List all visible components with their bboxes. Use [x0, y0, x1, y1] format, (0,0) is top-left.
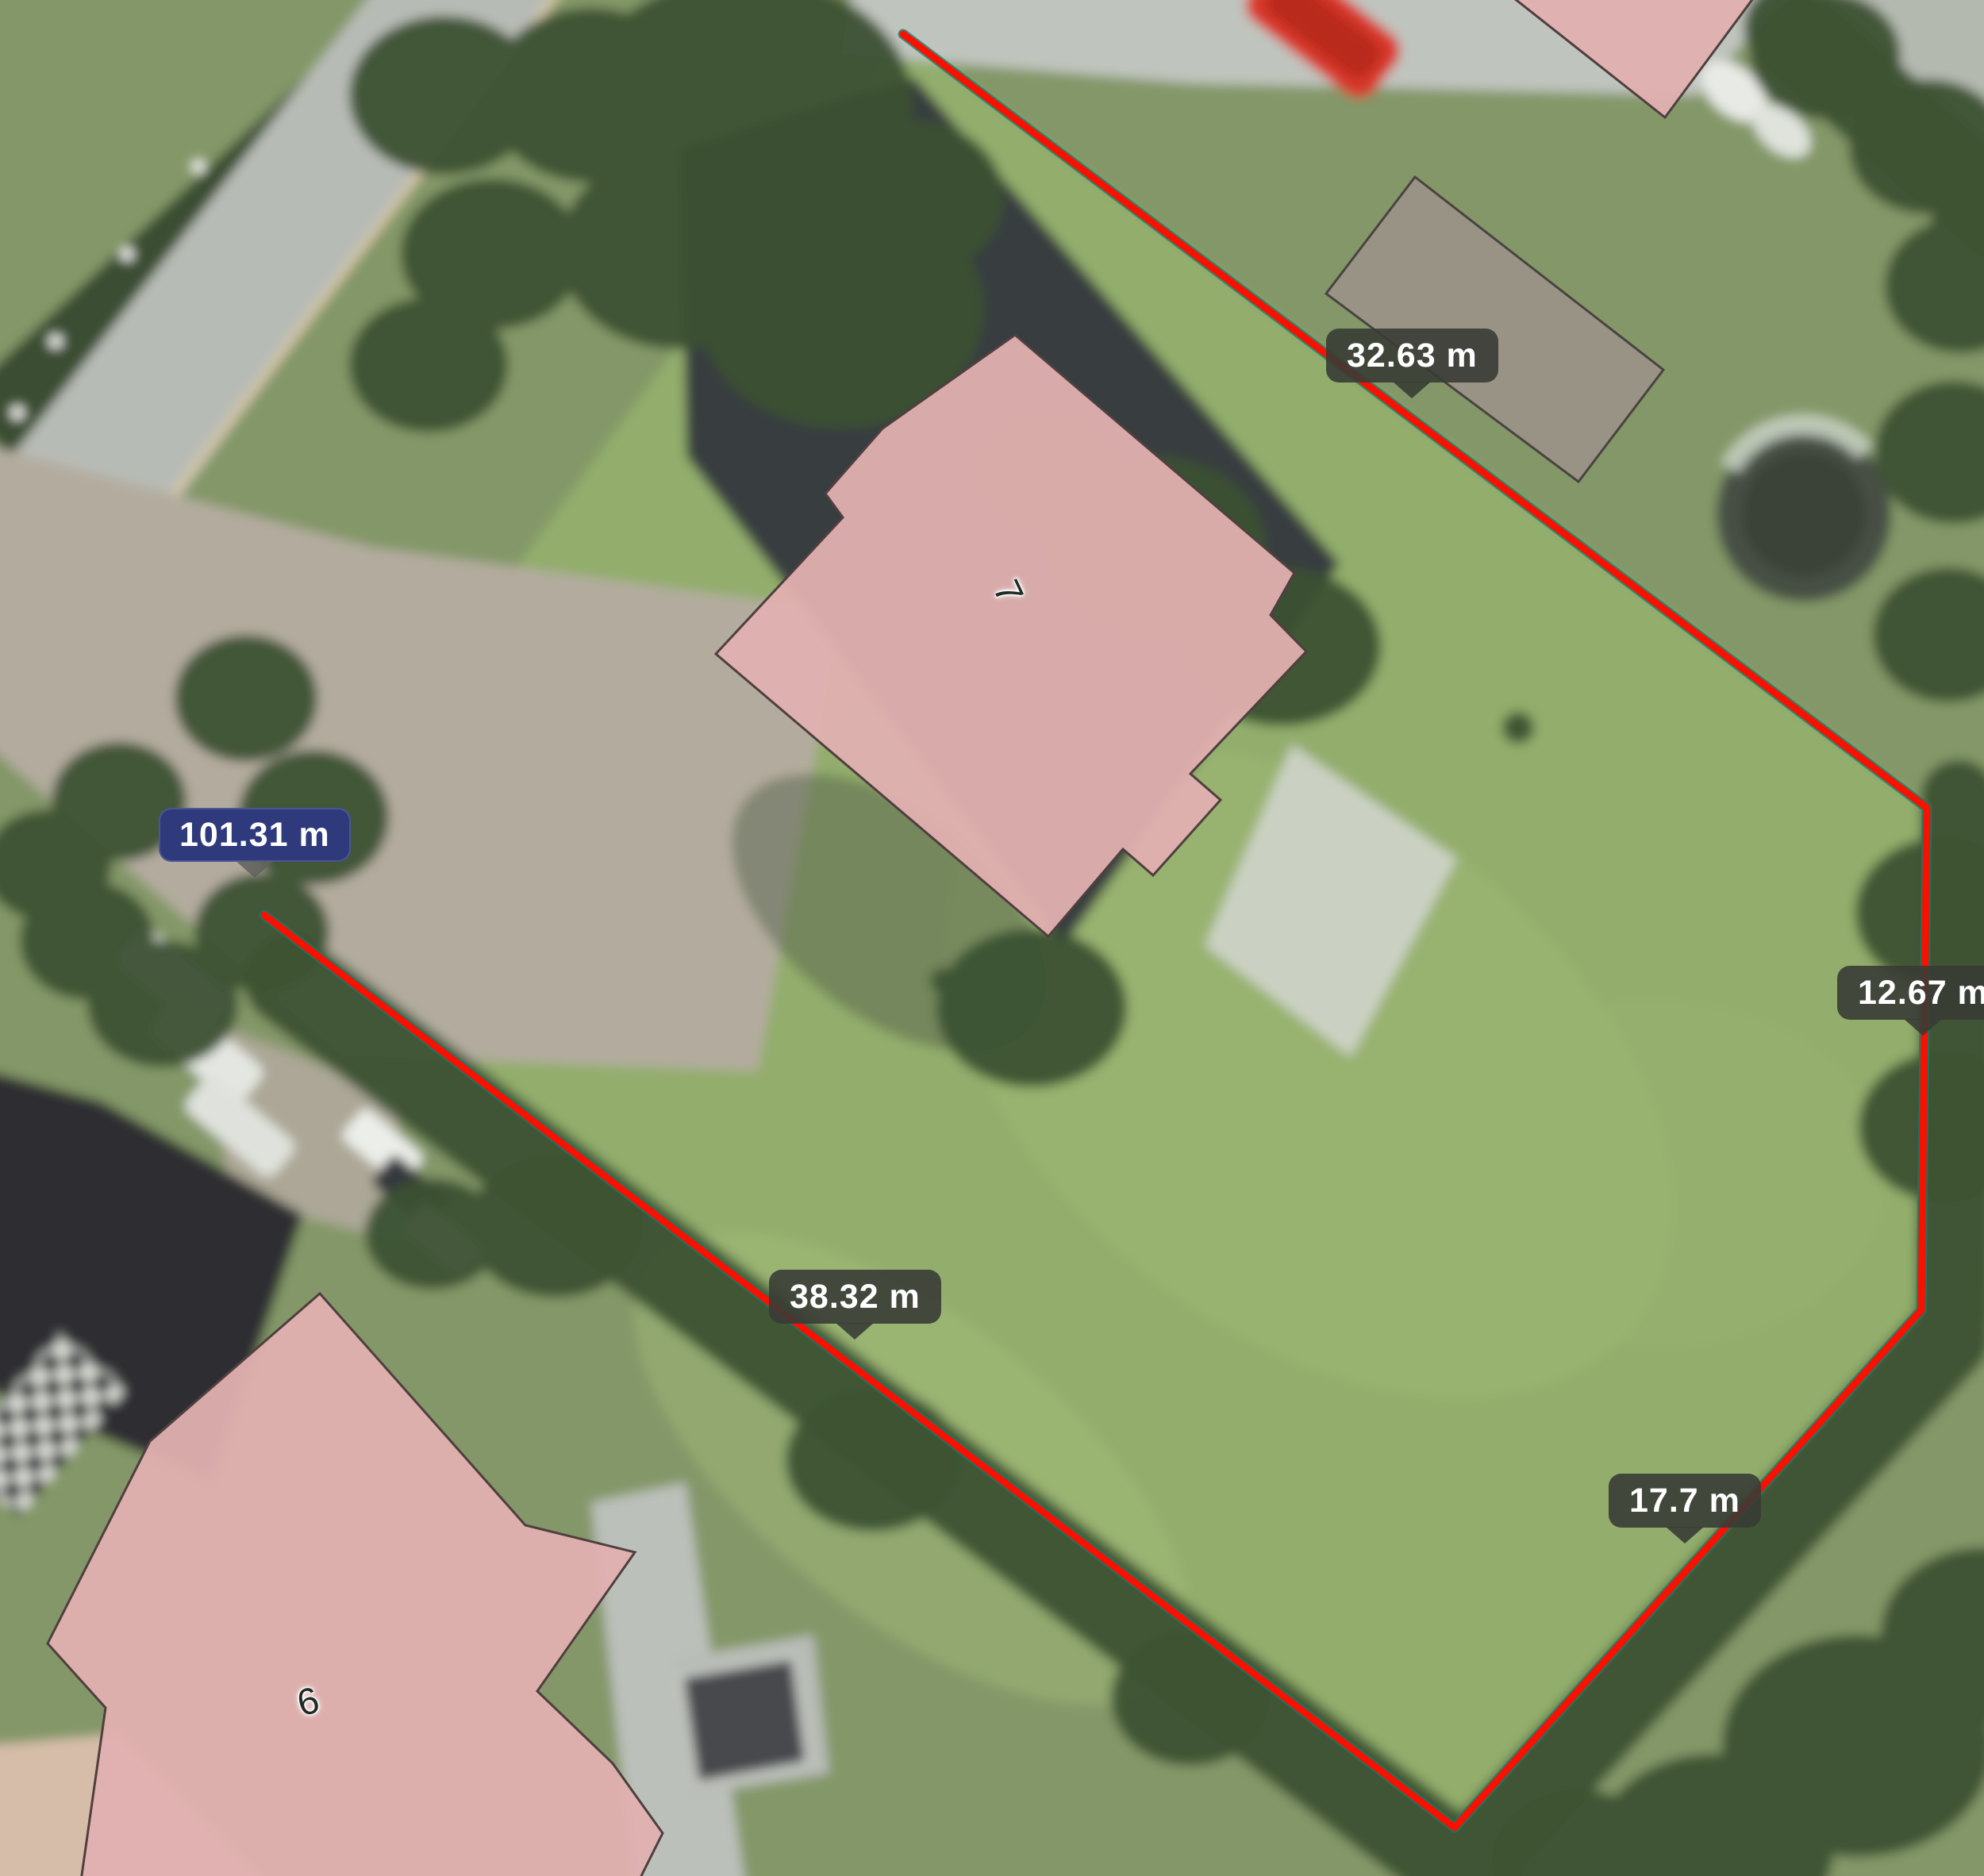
segment-label-4[interactable]: 38.32 m [769, 1270, 941, 1324]
fence-post [191, 160, 206, 174]
segment-label-2-text: 12.67 m [1858, 974, 1984, 1013]
fence-post [48, 334, 63, 348]
map-canvas[interactable]: 32.63 m 12.67 m 17.7 m 38.32 m 101.31 m … [0, 0, 1984, 1876]
segment-label-4-text: 38.32 m [790, 1278, 921, 1317]
fence-post [10, 406, 25, 420]
total-length-label[interactable]: 101.31 m [159, 808, 351, 862]
satellite-map[interactable] [0, 0, 1984, 1876]
segment-label-1[interactable]: 32.63 m [1326, 329, 1498, 383]
lawn-light-patch [1413, 1000, 1889, 1349]
segment-label-2[interactable]: 12.67 m [1837, 966, 1984, 1020]
fence-post [120, 247, 134, 261]
round-tree-core [1742, 452, 1866, 576]
segment-label-3-text: 17.7 m [1629, 1482, 1740, 1520]
segment-label-1-text: 32.63 m [1347, 336, 1478, 375]
segment-label-3[interactable]: 17.7 m [1609, 1474, 1761, 1528]
dark-shed [681, 1657, 808, 1784]
total-length-label-text: 101.31 m [179, 816, 330, 855]
